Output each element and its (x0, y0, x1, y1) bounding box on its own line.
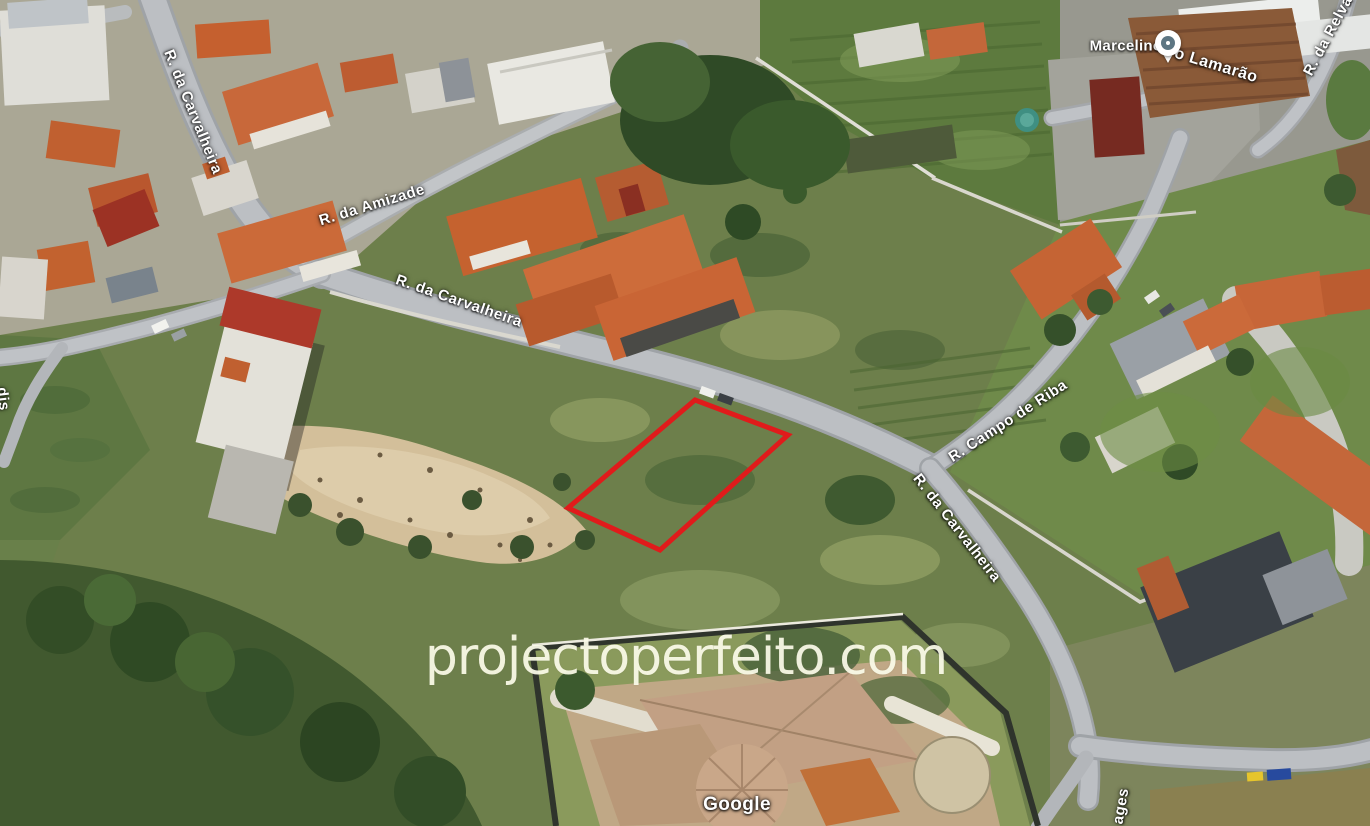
pin-center-dot (1166, 41, 1170, 45)
blue-vehicle (1267, 768, 1292, 781)
yellow-car (1247, 771, 1264, 781)
aerial-imagery (0, 0, 1370, 826)
google-attribution-logo: Google (703, 794, 771, 816)
poi-label-marcelino[interactable]: Marcelino (1090, 38, 1163, 55)
aerial-map-canvas[interactable]: R. da Carvalheira R. da Amizade R. da Ca… (0, 0, 1370, 826)
map-pin-icon[interactable] (1154, 30, 1182, 68)
